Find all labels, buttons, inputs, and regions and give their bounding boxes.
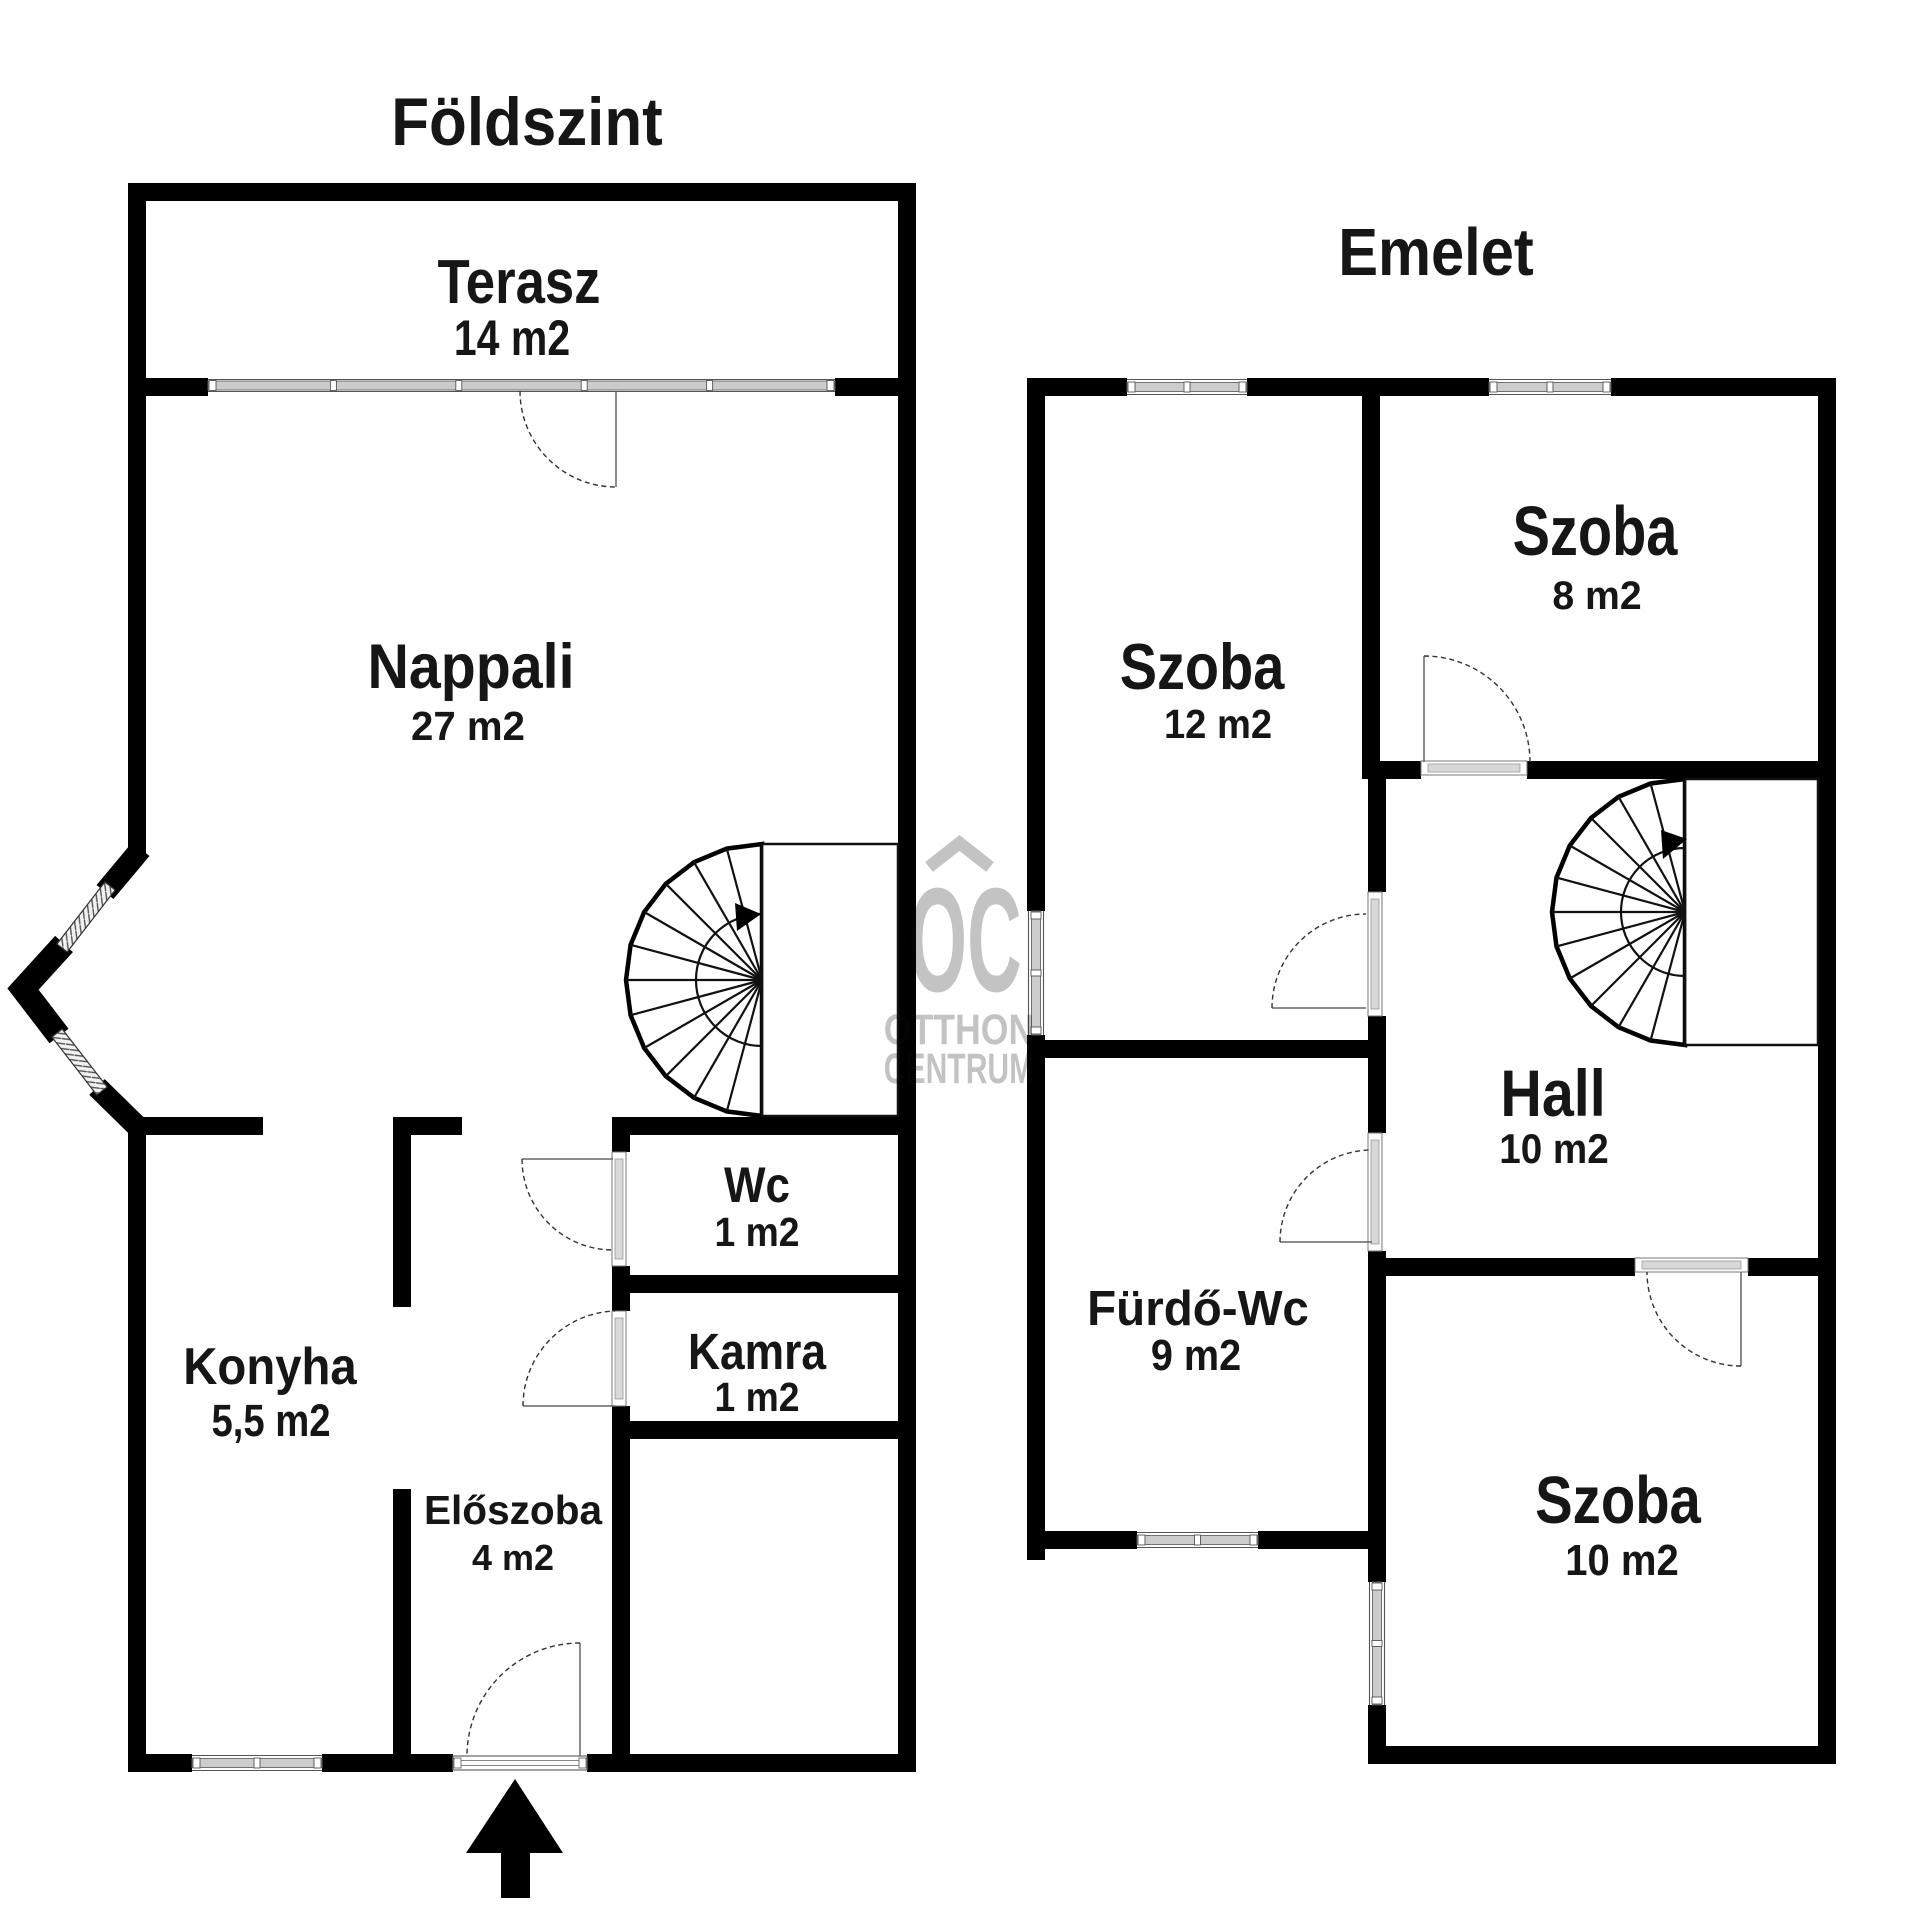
svg-text:14 m2: 14 m2 [454, 310, 570, 366]
svg-text:CENTRUM: CENTRUM [884, 1044, 1034, 1093]
svg-text:Szoba: Szoba [1120, 630, 1286, 703]
svg-text:4 m2: 4 m2 [472, 1537, 554, 1578]
svg-text:Kamra: Kamra [688, 1324, 826, 1381]
svg-text:8 m2: 8 m2 [1552, 574, 1641, 618]
svg-text:1 m2: 1 m2 [714, 1375, 799, 1420]
svg-text:Szoba: Szoba [1513, 493, 1679, 570]
svg-text:10 m2: 10 m2 [1565, 1535, 1678, 1584]
svg-text:Előszoba: Előszoba [424, 1487, 602, 1533]
svg-text:Hall: Hall [1500, 1057, 1605, 1131]
svg-text:Konyha: Konyha [183, 1337, 357, 1396]
svg-text:10 m2: 10 m2 [1499, 1124, 1609, 1172]
svg-text:12 m2: 12 m2 [1164, 702, 1272, 748]
svg-text:27 m2: 27 m2 [411, 703, 525, 749]
svg-text:Szoba: Szoba [1535, 1463, 1701, 1538]
svg-text:OC: OC [908, 857, 1021, 1022]
svg-text:1 m2: 1 m2 [714, 1210, 799, 1255]
svg-text:Emelet: Emelet [1338, 216, 1534, 290]
svg-text:Wc: Wc [724, 1156, 790, 1212]
svg-text:Fürdő-Wc: Fürdő-Wc [1087, 1281, 1309, 1336]
svg-text:9 m2: 9 m2 [1151, 1330, 1241, 1379]
svg-text:Földszint: Földszint [391, 83, 662, 159]
svg-text:Terasz: Terasz [437, 248, 600, 317]
svg-text:Nappali: Nappali [367, 630, 574, 701]
svg-text:5,5 m2: 5,5 m2 [211, 1395, 330, 1446]
